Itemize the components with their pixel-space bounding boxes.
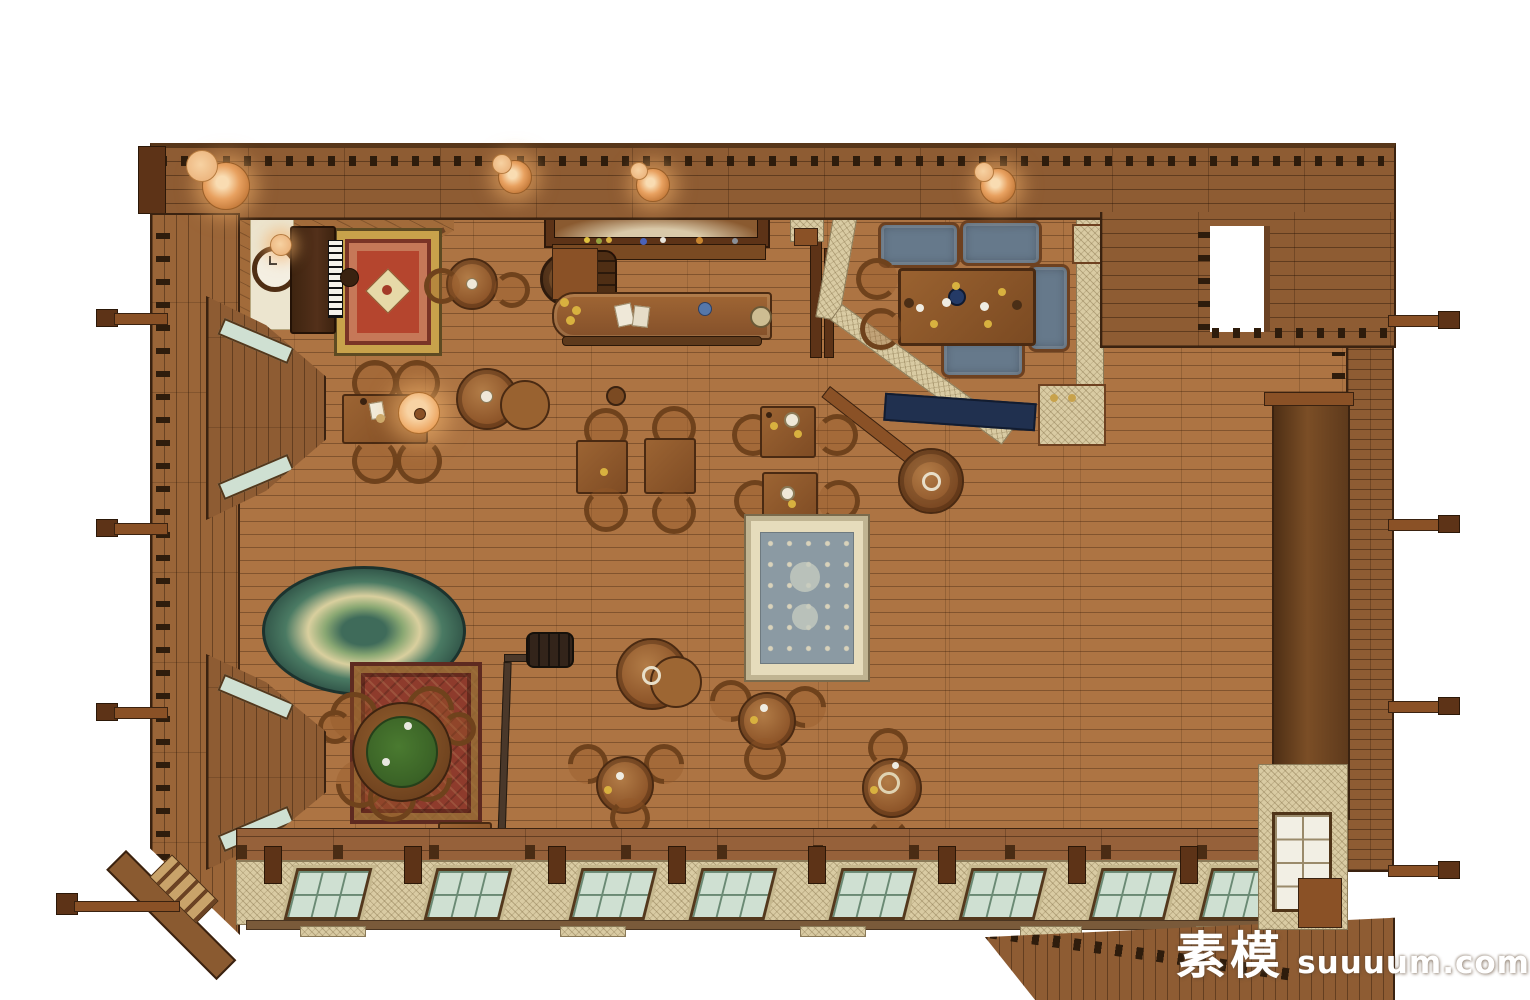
candle	[480, 390, 493, 403]
poker-chip	[760, 704, 768, 712]
glass-on-table	[904, 298, 914, 308]
porch-post	[264, 846, 282, 884]
watermark-domain: suuuum.com	[1297, 945, 1530, 981]
bracket-arm	[1388, 519, 1442, 531]
blue-cup	[698, 302, 712, 316]
top-roof-band	[150, 143, 1396, 220]
blue-sofa	[960, 220, 1042, 266]
lamp-core	[414, 408, 426, 420]
window	[424, 868, 513, 920]
bottle	[640, 238, 647, 245]
saloon-topdown-render: 素模网 suuuum.com	[0, 0, 1530, 1000]
window	[959, 868, 1048, 920]
roof-bracket	[1388, 306, 1458, 332]
porch-post	[548, 846, 566, 884]
wall-pier-cap	[794, 228, 818, 246]
chair	[816, 414, 858, 456]
roof-bracket-long	[56, 890, 180, 918]
window	[1089, 868, 1178, 920]
plate	[784, 412, 800, 428]
rafter-ticks	[160, 156, 1384, 166]
coin	[788, 500, 796, 508]
foundation-block	[800, 926, 866, 937]
poker-chip	[998, 288, 1006, 296]
right-wall	[1346, 346, 1394, 872]
bracket-knob	[1438, 515, 1460, 533]
coin	[604, 786, 612, 794]
rug-medallion-core	[382, 285, 392, 295]
candle	[466, 278, 478, 290]
bracket-arm	[74, 901, 180, 912]
porch-post	[668, 846, 686, 884]
porch-post	[808, 846, 826, 884]
foundation-block	[300, 926, 366, 937]
roof-bracket	[96, 304, 166, 330]
glass-on-table	[360, 398, 367, 405]
chair	[652, 490, 696, 534]
stage-wall-lamp	[270, 234, 292, 256]
coin	[870, 786, 878, 794]
bottle	[660, 237, 666, 243]
coat-post	[606, 386, 626, 406]
sloped-canopy	[1272, 398, 1350, 820]
hanging-lamp-shade	[492, 154, 512, 174]
porch-post	[1068, 846, 1086, 884]
coin	[750, 716, 758, 724]
bottle	[584, 237, 590, 243]
poker-chip	[616, 772, 624, 780]
rafter-ticks	[1198, 230, 1210, 330]
hanging-lamp-shade	[974, 162, 994, 182]
watermark-site-name: 素模网	[1176, 916, 1295, 1000]
stool	[424, 268, 460, 304]
gray-oriental-rug	[744, 514, 870, 682]
hanging-lamp-shade	[630, 162, 648, 180]
glass-on-table	[766, 412, 772, 418]
corner-post	[138, 146, 166, 214]
poker-chip	[916, 304, 924, 312]
foundation-block	[560, 926, 626, 937]
porch-post	[404, 846, 422, 884]
poker-chip	[930, 320, 938, 328]
bracket-arm	[114, 313, 168, 325]
bracket-knob	[1438, 311, 1460, 329]
poker-chip	[984, 320, 992, 328]
gray-rug-field	[760, 532, 854, 664]
porch-post	[938, 846, 956, 884]
glass-on-table	[1012, 300, 1022, 310]
chair	[744, 738, 786, 780]
plate	[642, 666, 661, 685]
coin	[770, 422, 778, 430]
roof-bracket	[96, 514, 166, 540]
rug-medallion	[792, 604, 818, 630]
piano-stool	[340, 268, 359, 287]
roof-bracket	[96, 698, 166, 724]
poker-chip	[382, 758, 390, 766]
window	[569, 868, 658, 920]
mug	[376, 414, 385, 423]
bracket-arm	[1388, 701, 1442, 713]
rug-medallion	[790, 562, 820, 592]
hanging-lamp-shade	[186, 150, 218, 182]
bracket-knob	[1438, 861, 1460, 879]
coin	[572, 306, 581, 315]
coin	[600, 468, 608, 476]
chair	[584, 488, 628, 532]
book	[632, 305, 650, 328]
lounge-chair	[860, 308, 902, 350]
poker-chip	[942, 298, 951, 307]
clock-hand	[270, 263, 277, 265]
bracket-arm	[114, 707, 168, 719]
square-table	[576, 440, 628, 494]
coin	[794, 430, 802, 438]
lounge-chair	[856, 258, 898, 300]
canopy-cap	[1264, 392, 1354, 406]
cup-and-saucer	[878, 772, 900, 794]
bracket-knob	[1438, 697, 1460, 715]
plate	[922, 472, 941, 491]
gold-fixture	[1050, 394, 1058, 402]
bracket-arm	[1388, 315, 1442, 327]
poker-table-felt	[366, 716, 438, 788]
plate	[750, 306, 772, 328]
coin	[566, 316, 575, 325]
bar-footrail	[562, 336, 762, 346]
bottle	[732, 238, 738, 244]
blue-sofa	[878, 222, 960, 268]
square-table	[644, 438, 696, 494]
coin	[560, 298, 569, 307]
roof-bracket	[1388, 856, 1458, 882]
round-chair	[500, 380, 550, 430]
poker-chip	[404, 722, 412, 730]
window	[284, 868, 373, 920]
poker-chip	[892, 762, 899, 769]
window	[829, 868, 918, 920]
bottle	[696, 237, 703, 244]
watermark: 素模网 suuuum.com	[1176, 916, 1530, 1000]
chair	[396, 438, 442, 484]
bracket-arm	[1388, 865, 1442, 877]
gold-fixture	[1068, 394, 1076, 402]
roof-bracket	[1388, 692, 1458, 718]
window	[689, 868, 778, 920]
poker-chip	[952, 282, 960, 290]
wood-stove	[526, 632, 574, 668]
roof-notch	[1210, 226, 1270, 332]
bottle	[596, 238, 602, 244]
chair	[352, 438, 398, 484]
bottle	[606, 237, 612, 243]
rafter-ticks	[1212, 328, 1390, 338]
porch-post	[1180, 846, 1198, 884]
bar-counter	[552, 292, 772, 340]
stool	[494, 272, 530, 308]
poker-chip	[980, 302, 989, 311]
bracket-arm	[114, 523, 168, 535]
roof-bracket	[1388, 510, 1458, 536]
plate	[780, 486, 795, 501]
